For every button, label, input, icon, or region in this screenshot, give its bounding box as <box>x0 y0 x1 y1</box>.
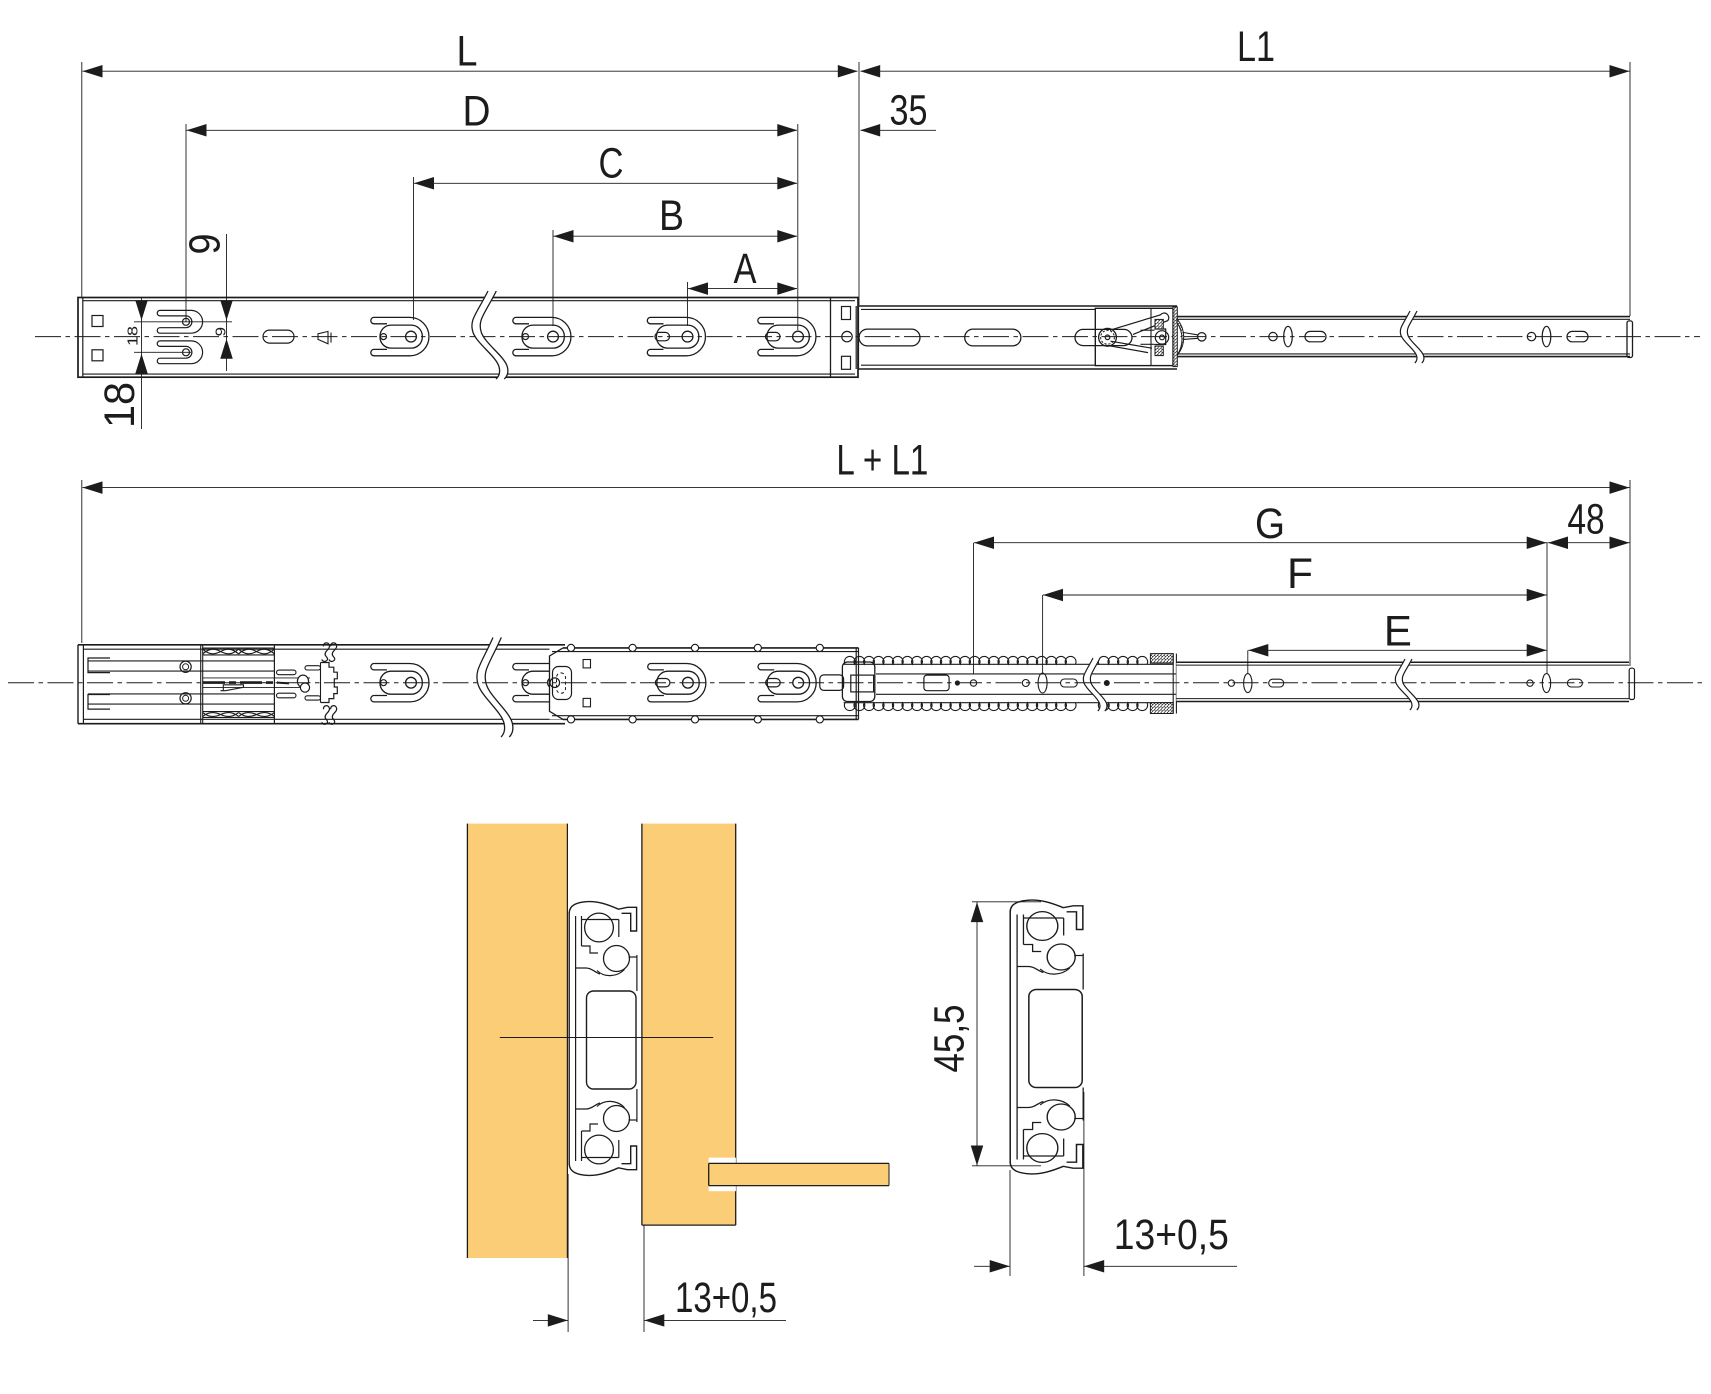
svg-text:13+0,5: 13+0,5 <box>675 1274 777 1322</box>
svg-text:D: D <box>463 88 491 136</box>
svg-text:9: 9 <box>181 234 230 255</box>
svg-text:18: 18 <box>124 326 141 346</box>
svg-text:L: L <box>457 28 478 76</box>
svg-text:A: A <box>734 245 757 293</box>
svg-text:9: 9 <box>212 327 229 336</box>
svg-text:G: G <box>1255 500 1285 548</box>
svg-text:L + L1: L + L1 <box>836 437 928 485</box>
svg-text:E: E <box>1384 608 1412 656</box>
svg-text:B: B <box>659 192 684 240</box>
svg-text:L1: L1 <box>1237 23 1275 71</box>
svg-text:C: C <box>599 140 624 188</box>
svg-text:45,5: 45,5 <box>926 1005 974 1073</box>
svg-text:48: 48 <box>1567 496 1604 544</box>
svg-text:18: 18 <box>96 382 144 428</box>
svg-text:35: 35 <box>890 87 928 135</box>
svg-text:13+0,5: 13+0,5 <box>1114 1211 1229 1259</box>
svg-text:F: F <box>1287 550 1313 598</box>
